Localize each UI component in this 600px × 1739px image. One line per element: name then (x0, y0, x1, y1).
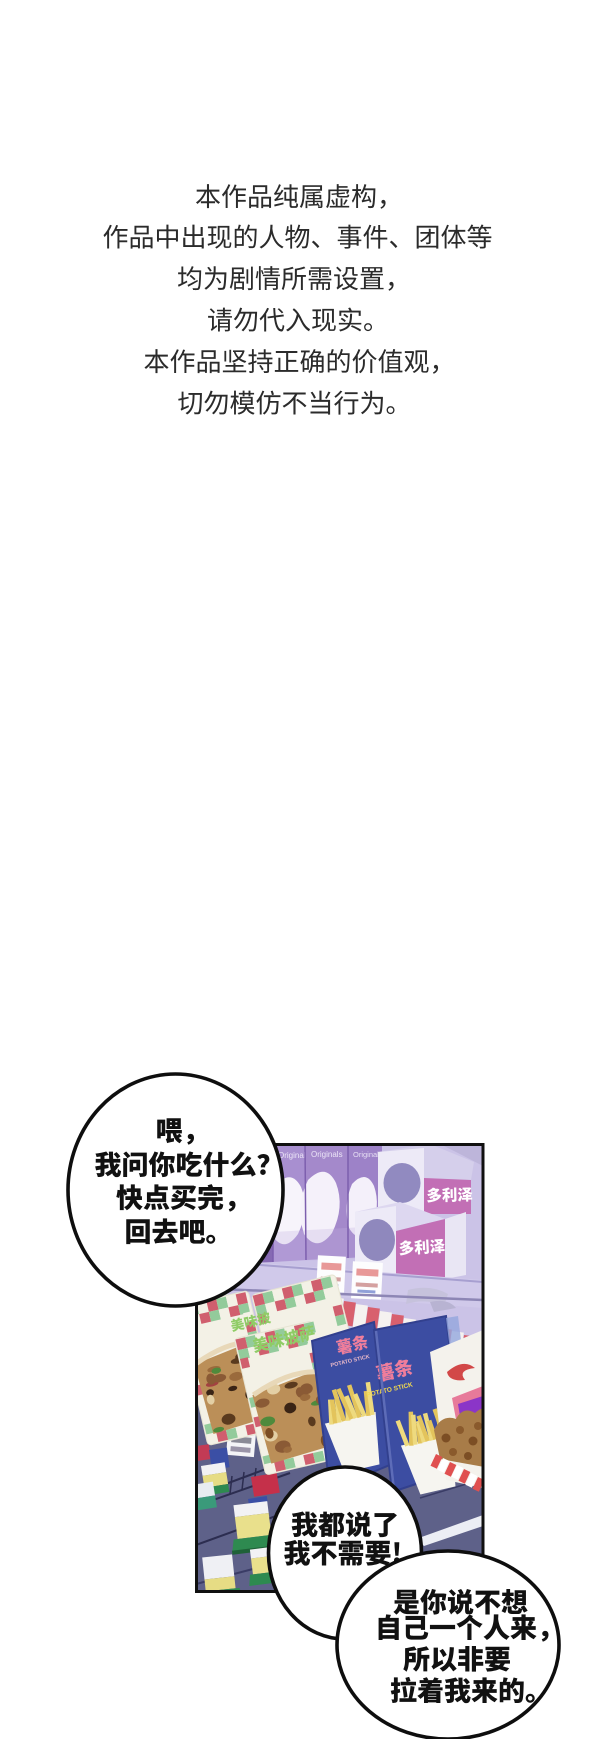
svg-text:Originals: Originals (311, 1150, 343, 1159)
